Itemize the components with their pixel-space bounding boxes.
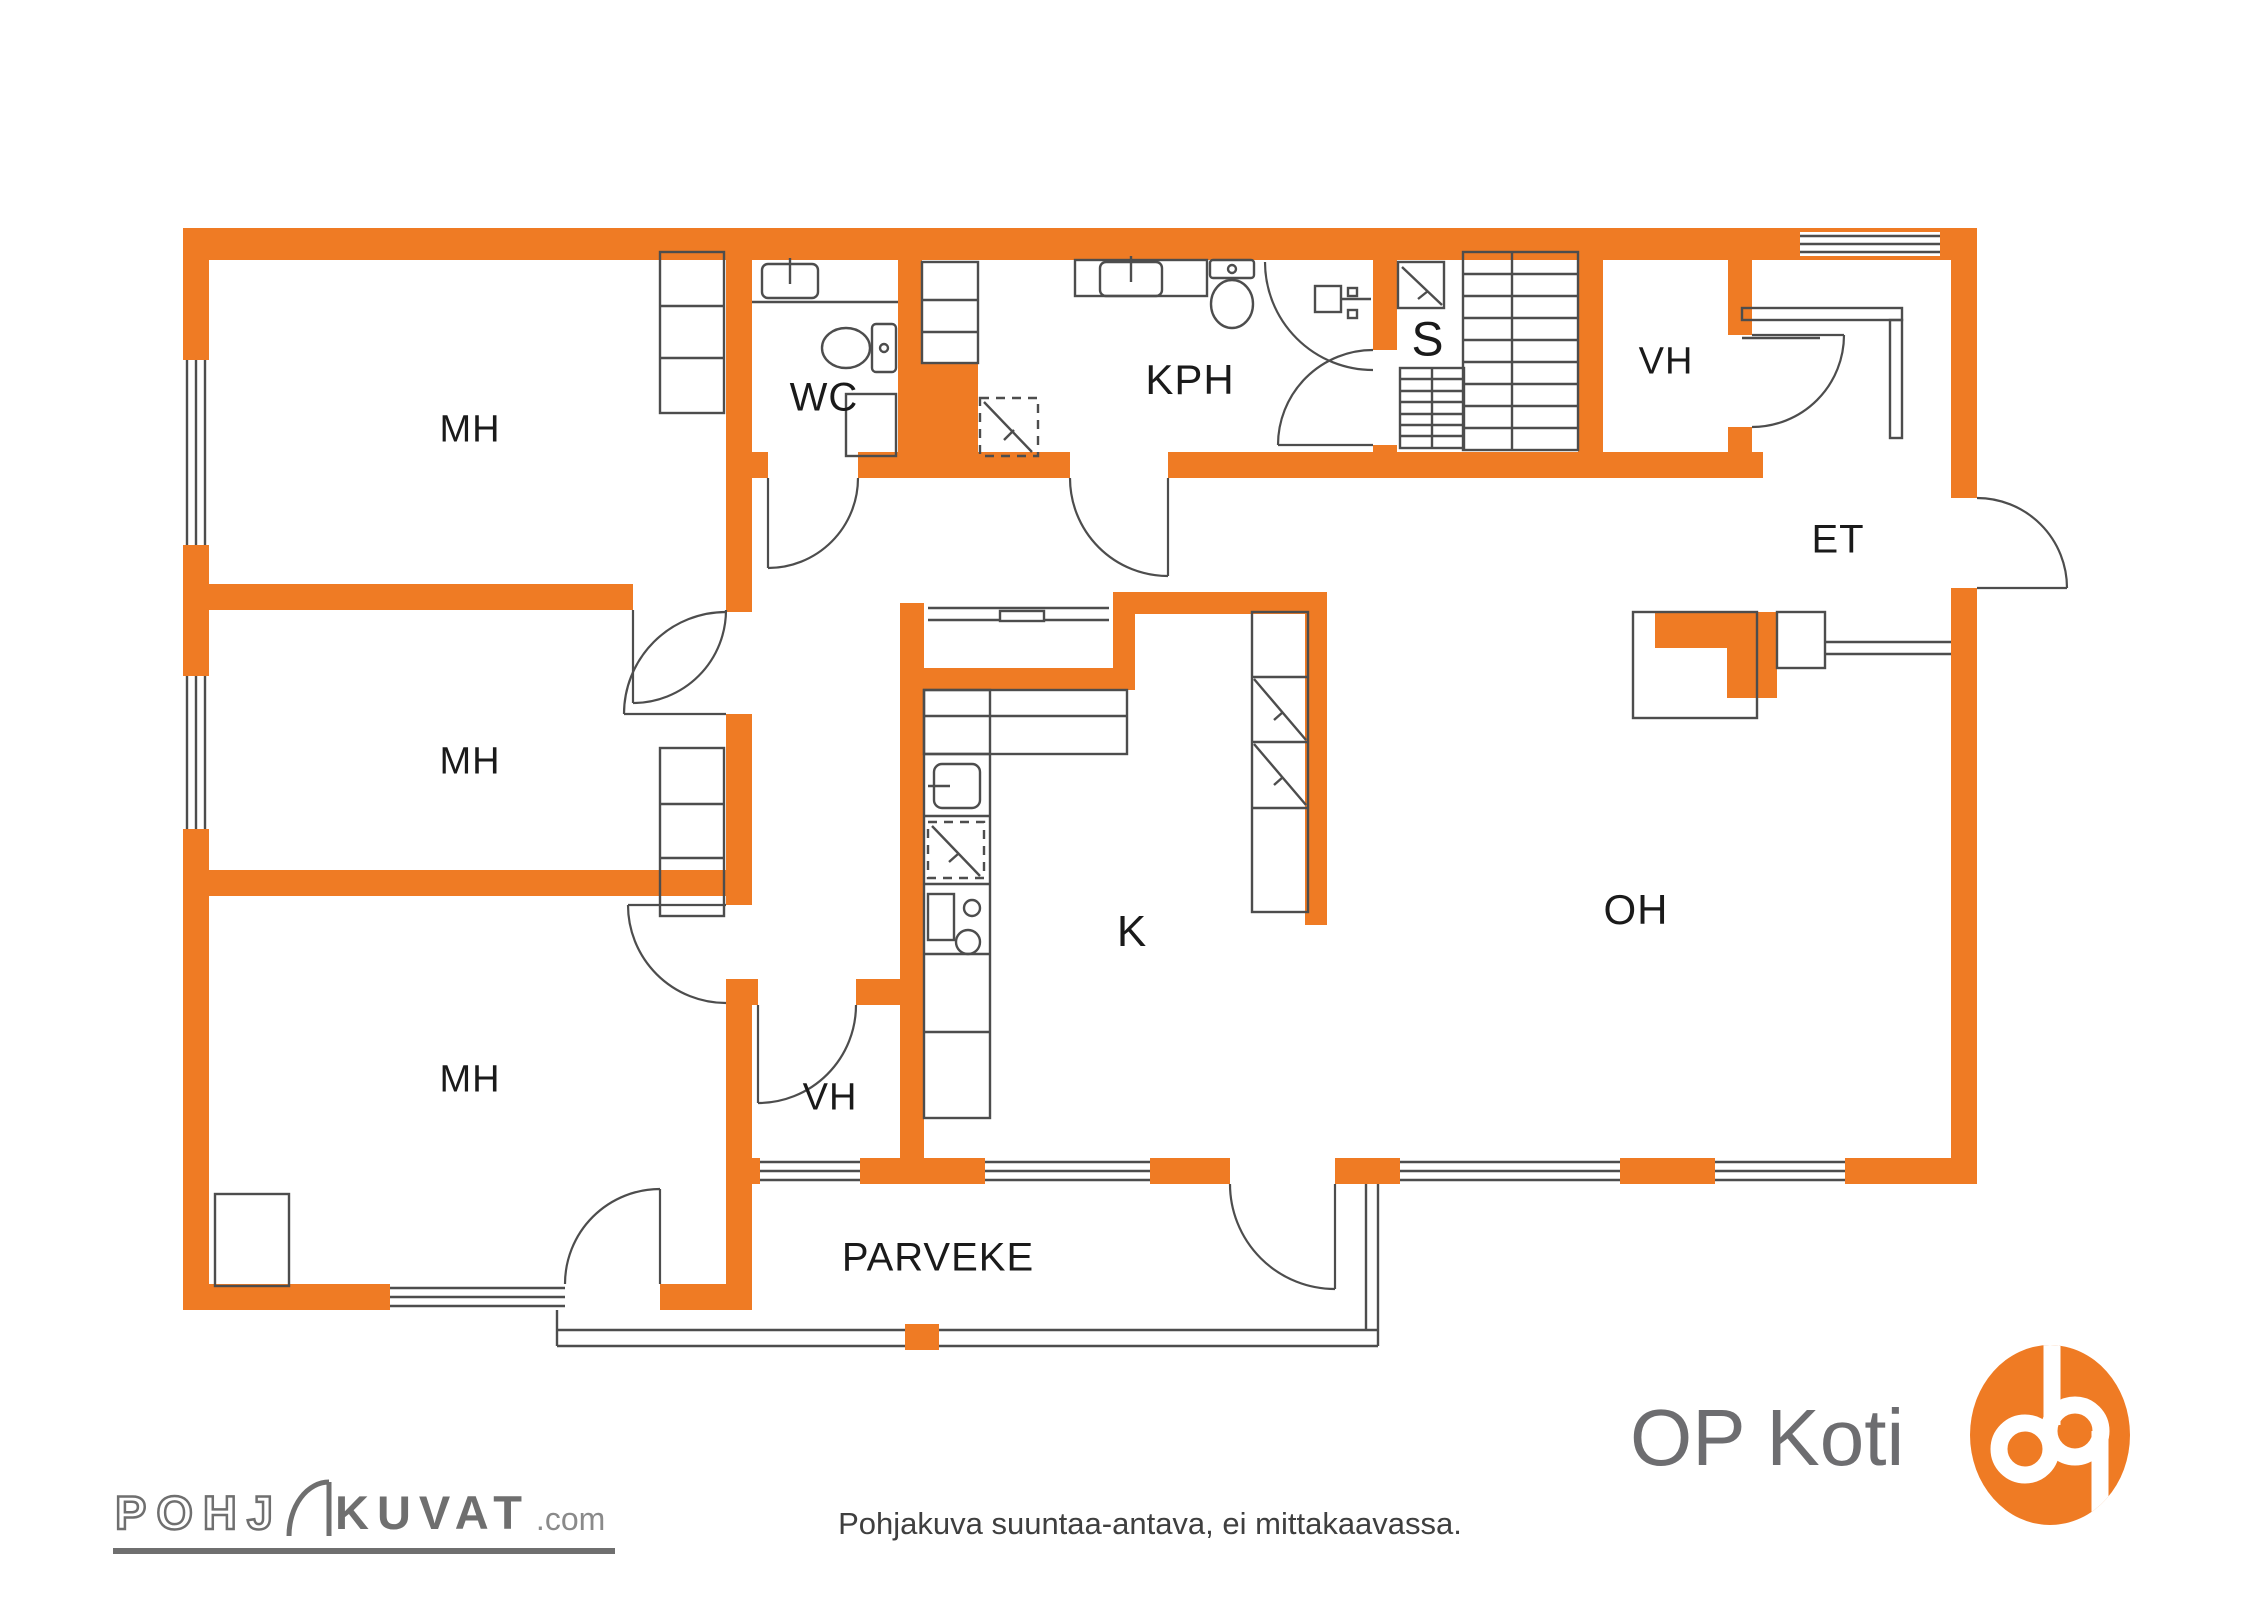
drying-cabinet-icon xyxy=(980,398,1038,456)
floor-plan-canvas: MH MH MH WC KPH S VH ET K OH VH PARVEKE … xyxy=(0,0,2262,1600)
coat-rack-icon xyxy=(1742,308,1902,438)
fridge-freezer-icon xyxy=(1252,612,1308,912)
watermark-solid-text: KUVAT xyxy=(335,1485,530,1540)
kph-toilet-icon xyxy=(1210,260,1254,328)
dishwasher-icon xyxy=(928,822,984,878)
hall-cabinet xyxy=(922,262,978,363)
stove-icon xyxy=(928,894,980,954)
op-koti-brand-text: OP Koti xyxy=(1630,1392,1904,1484)
room-label-et: ET xyxy=(1811,518,1864,563)
sauna-stove-icon xyxy=(1398,262,1444,308)
wc-toilet-icon xyxy=(822,324,896,372)
kph-sink-icon xyxy=(1075,256,1207,296)
door-logo-icon xyxy=(283,1478,335,1540)
pohjakuvat-watermark: POHJ KUVAT .com xyxy=(113,1478,615,1554)
room-label-parveke: PARVEKE xyxy=(842,1236,1034,1281)
sauna-bench-icon xyxy=(1400,368,1464,448)
watermark-outline-text: POHJ xyxy=(115,1485,283,1540)
kitchen-sink-icon xyxy=(928,764,980,808)
room-label-mh3: MH xyxy=(439,1059,500,1102)
shower-mixer-icon xyxy=(1315,286,1371,318)
op-logo-icon xyxy=(1965,1340,2135,1530)
fireplace-icon xyxy=(1633,612,1951,718)
stairs-icon xyxy=(1463,252,1578,450)
disclaimer-text: Pohjakuva suuntaa-antava, ei mittakaavas… xyxy=(780,1506,1520,1542)
serving-hatch-icon xyxy=(928,608,1109,621)
room-label-mh2: MH xyxy=(439,741,500,784)
room-label-kph: KPH xyxy=(1145,356,1234,404)
room-label-sauna: S xyxy=(1411,313,1444,368)
room-label-kitchen: K xyxy=(1117,907,1147,957)
watermark-suffix-text: .com xyxy=(536,1501,605,1540)
linework-layer xyxy=(0,0,2262,1600)
room-label-wc: WC xyxy=(790,376,859,421)
room-label-mh1: MH xyxy=(439,409,500,452)
wc-sink-icon xyxy=(752,258,898,302)
room-label-oh: OH xyxy=(1604,886,1669,934)
room-label-vh-top: VH xyxy=(1639,341,1694,384)
room-label-vh-bottom: VH xyxy=(803,1077,858,1120)
